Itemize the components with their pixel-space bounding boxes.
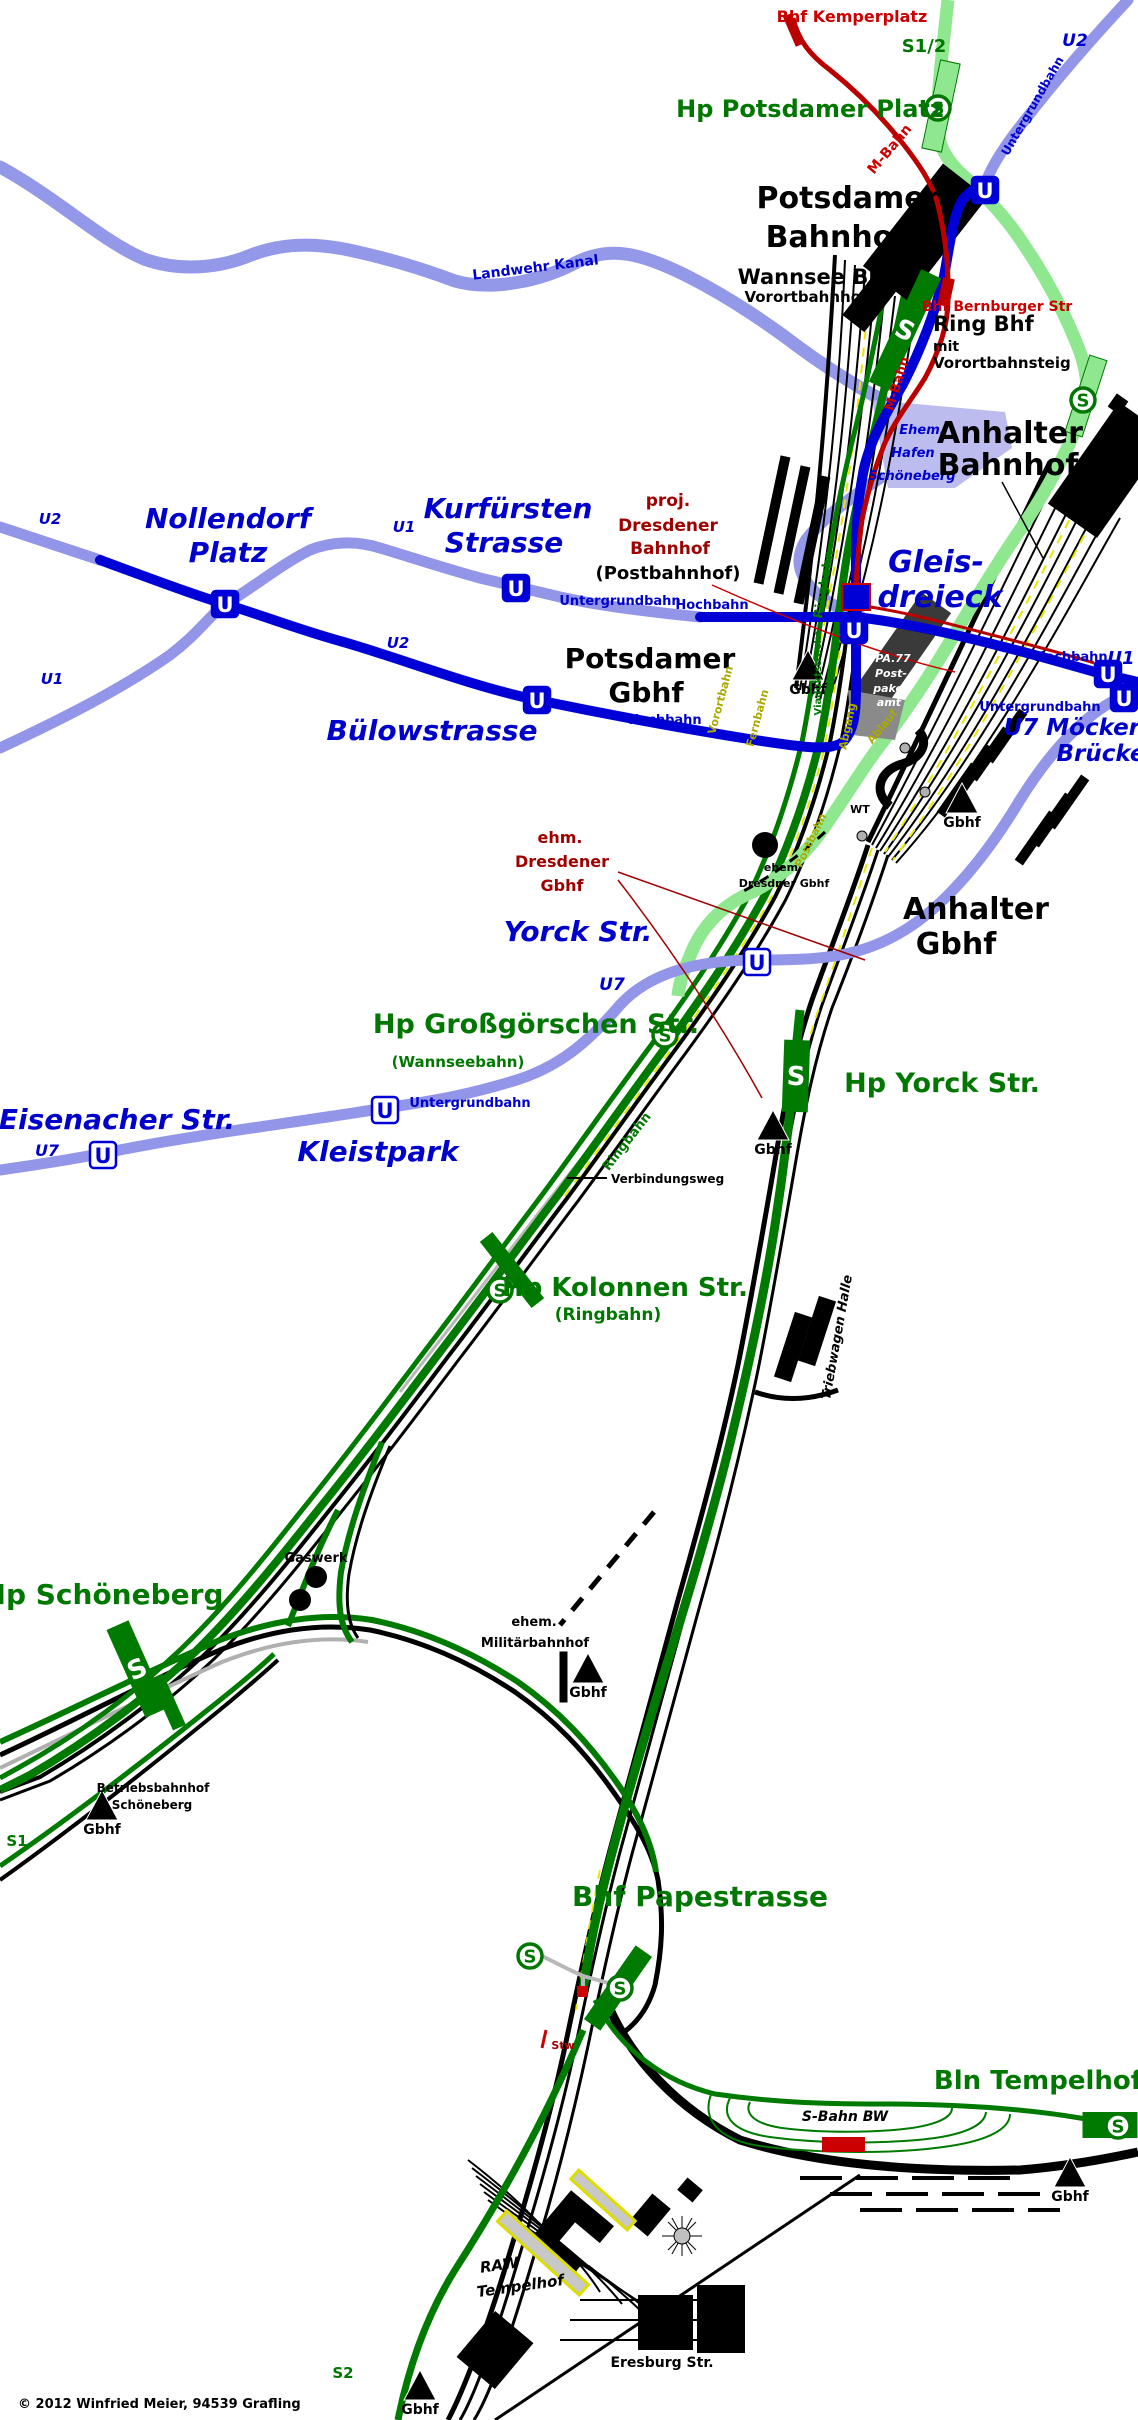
label-wannseebahn: (Wannseebahn) bbox=[392, 1053, 525, 1071]
u-kleistpark-letter: U bbox=[376, 1099, 393, 1123]
label-betriebsbahnhof-2: Schöneberg bbox=[112, 1798, 192, 1812]
label-anhalter-gbhf-1: Anhalter bbox=[903, 892, 1049, 927]
yorck-platform-letter: S bbox=[786, 1062, 806, 1093]
label-betriebsbahnhof-1: Betriebsbahnhof bbox=[97, 1781, 210, 1795]
label-pa77-4: amt bbox=[877, 696, 902, 709]
s-tempelhof-letter: S bbox=[1112, 2117, 1125, 2138]
gbhf-militaer-label: Gbhf bbox=[569, 1685, 607, 1701]
u-potsdamer-platz-letter: U bbox=[976, 179, 993, 203]
label-u1-left: U1 bbox=[41, 670, 64, 688]
label-u2-top: U2 bbox=[1062, 31, 1088, 51]
label-hp-schoeneberg: Hp Schöneberg bbox=[0, 1578, 223, 1611]
label-s12: S1/2 bbox=[902, 36, 947, 57]
label-bhf-kemperplatz: Bhf Kemperplatz bbox=[777, 7, 928, 26]
gbhf-schoeneberg-label: Gbhf bbox=[83, 1822, 121, 1838]
u-eisenacher-strasse-letter: U bbox=[94, 1144, 111, 1168]
label-u7-yorck: U7 bbox=[599, 975, 625, 995]
label-s2: S2 bbox=[332, 2364, 353, 2382]
label-hp-kolonnen: Hp Kolonnen Str. bbox=[502, 1273, 748, 1303]
label-postbahnhof: (Postbahnhof) bbox=[595, 563, 740, 584]
label-ehem-dresdner-site-2: Dresdner Gbhf bbox=[739, 877, 830, 890]
label-ring-bhf-mit: mit bbox=[933, 339, 959, 355]
yorck-platform: S bbox=[782, 1040, 810, 1113]
label-kurfuersten-2: Strasse bbox=[445, 526, 564, 559]
label-nollendorf-1: Nollendorf bbox=[145, 502, 315, 535]
u-moeckernbruecke-u7: U bbox=[1111, 685, 1137, 711]
label-vorortbahnsteig: Vorortbahnsteig bbox=[933, 354, 1071, 372]
label-anhalter-bahnhof-1: Anhalter bbox=[937, 416, 1083, 451]
label-eresburg: Eresburg Str. bbox=[610, 2355, 713, 2371]
label-anhalter-bahnhof-2: Bahnhof bbox=[938, 448, 1080, 483]
label-copyright: © 2012 Winfried Meier, 94539 Grafling bbox=[18, 2397, 301, 2412]
label-ehm-dresdener-2: Dresdener bbox=[515, 852, 609, 871]
gbhf-anhalter-label: Gbhf bbox=[943, 815, 981, 831]
label-kleistpark: Kleistpark bbox=[297, 1135, 461, 1168]
gleisdreieck-red-box bbox=[842, 584, 870, 610]
label-ehem-hafen-2: Hafen bbox=[891, 446, 934, 461]
s-papestrasse-ring: S bbox=[518, 1944, 542, 1968]
label-wt: WT bbox=[850, 803, 870, 816]
s-tempelhof: S bbox=[1106, 2114, 1130, 2138]
label-hp-grossgoerschen: Hp Großgörschen Str. bbox=[373, 1009, 699, 1040]
label-hochbahn-gd: Hochbahn bbox=[675, 598, 748, 613]
label-u1-mid: U1 bbox=[393, 518, 416, 536]
gbhf-yorck-label: Gbhf bbox=[754, 1142, 792, 1158]
label-untergrundbahn-klp: Untergrundbahn bbox=[409, 1096, 530, 1111]
gbhf-sued-label: Gbhf bbox=[401, 2402, 439, 2418]
label-stw: Stw bbox=[551, 2039, 574, 2052]
label-u1-moe: U1 bbox=[1107, 648, 1134, 669]
label-potsdamer-gbhf-1: Potsdamer bbox=[565, 642, 736, 675]
s-anhalter-bahnhof-letter: S bbox=[1077, 391, 1090, 412]
label-eisenacher: Eisenacher Str. bbox=[0, 1103, 235, 1136]
label-anhalter-gbhf-2: Gbhf bbox=[916, 927, 997, 962]
u-nollendorfplatz: U bbox=[212, 591, 238, 617]
label-potsdamer-bahnhof-2: Bahnhof bbox=[766, 220, 908, 255]
label-ehm-dresdener-3: Gbhf bbox=[541, 876, 585, 895]
label-pa77-2: Post- bbox=[875, 667, 907, 680]
label-hp-yorck-str: Hp Yorck Str. bbox=[844, 1068, 1040, 1099]
label-proj-dresdener-3: Bahnhof bbox=[630, 539, 710, 559]
s-papestrasse-ring-letter: S bbox=[524, 1947, 537, 1968]
label-hochbahn-bue: Hochbahn bbox=[628, 713, 701, 728]
label-hp-potsdamer-platz: Hp Potsdamer Platz bbox=[676, 95, 944, 123]
label-kurfuersten-1: Kurfürsten bbox=[424, 492, 593, 525]
u-gleisdreieck: U bbox=[841, 617, 867, 643]
label-bruecke: Brücke bbox=[1057, 741, 1138, 767]
label-gleisdreieck-2: dreieck bbox=[878, 580, 1005, 615]
label-proj-dresdener-1: proj. bbox=[646, 491, 691, 511]
u-buelowstrasse: U bbox=[524, 687, 550, 713]
s-papestrasse-vorort: S bbox=[608, 1976, 632, 2000]
berlin-rail-map: © 2012 Winfried Meier, 94539 Grafling bbox=[0, 0, 1138, 2420]
sbahn-bw-building bbox=[822, 2137, 865, 2152]
label-ringbahn-kol: (Ringbahn) bbox=[555, 1305, 662, 1325]
label-untergrundbahn-gd: Untergrundbahn bbox=[559, 594, 680, 609]
u-buelowstrasse-letter: U bbox=[528, 689, 545, 713]
u-eisenacher-strasse: U bbox=[90, 1142, 116, 1168]
label-verbindungsweg: Verbindungsweg bbox=[611, 1172, 724, 1186]
u-kurfuerstenstrasse-letter: U bbox=[507, 577, 524, 601]
label-bln-tempelhof: Bln Tempelhof bbox=[934, 2066, 1138, 2096]
u-gleisdreieck-letter: U bbox=[845, 619, 862, 643]
water-tower-symbol bbox=[662, 2216, 702, 2256]
u-kleistpark: U bbox=[372, 1097, 398, 1123]
label-vorortbahnhof: Vorortbahnhof bbox=[744, 288, 868, 306]
u-nollendorfplatz-letter: U bbox=[216, 593, 233, 617]
s-anhalter-bahnhof: S bbox=[1071, 388, 1095, 412]
label-u2-mid: U2 bbox=[387, 634, 410, 652]
label-u2-left: U2 bbox=[39, 510, 62, 528]
label-potsdamer-gbhf-2: Gbhf bbox=[608, 676, 684, 709]
label-ehm-dresdener-1: ehm. bbox=[538, 828, 583, 847]
s-papestrasse-vorort-letter: S bbox=[614, 1979, 627, 2000]
label-ehem-mil-1: ehem. bbox=[511, 1615, 556, 1630]
label-s1: S1 bbox=[6, 1832, 27, 1850]
u-potsdamer-platz: U bbox=[972, 177, 998, 203]
label-gaswerk: Gaswerk bbox=[284, 1551, 347, 1566]
label-yorck-str: Yorck Str. bbox=[504, 915, 653, 948]
gbhf-tempelhof-label: Gbhf bbox=[1051, 2189, 1089, 2205]
u-yorckstrasse-letter: U bbox=[748, 951, 765, 975]
label-proj-dresdener-2: Dresdener bbox=[618, 516, 718, 536]
label-buelowstrasse: Bülowstrasse bbox=[326, 714, 537, 747]
label-hochbahn-moe: Hochbahn bbox=[1034, 650, 1107, 665]
label-u7-moeckern: U7 Möckern bbox=[1004, 715, 1138, 741]
u-kurfuerstenstrasse: U bbox=[503, 575, 529, 601]
label-ehem-mil-2: Militärbahnhof bbox=[481, 1636, 589, 1651]
label-potsdamer-bahnhof-1: Potsdamer bbox=[757, 181, 940, 216]
label-bhf-papestrasse: Bhf Papestrasse bbox=[572, 1880, 828, 1913]
u-moeckernbruecke-u7-letter: U bbox=[1115, 687, 1132, 711]
label-viaduktstrecke: Viaduktstrecke bbox=[813, 630, 824, 715]
u-yorckstrasse: U bbox=[744, 949, 770, 975]
label-u7-eis: U7 bbox=[35, 1141, 60, 1160]
label-pa77-3: paket- bbox=[872, 682, 913, 695]
label-untergrundbahn-moe: Untergrundbahn bbox=[979, 700, 1100, 715]
label-ring-bhf: Ring Bhf bbox=[933, 312, 1035, 336]
label-pa77-1: PA.77 bbox=[875, 652, 911, 665]
label-gleisdreieck-1: Gleis- bbox=[888, 545, 984, 580]
label-s-bahn-bw: S-Bahn BW bbox=[802, 2109, 889, 2125]
label-wannsee-bhf: Wannsee Bhf bbox=[738, 265, 894, 289]
label-nollendorf-2: Platz bbox=[189, 536, 268, 569]
